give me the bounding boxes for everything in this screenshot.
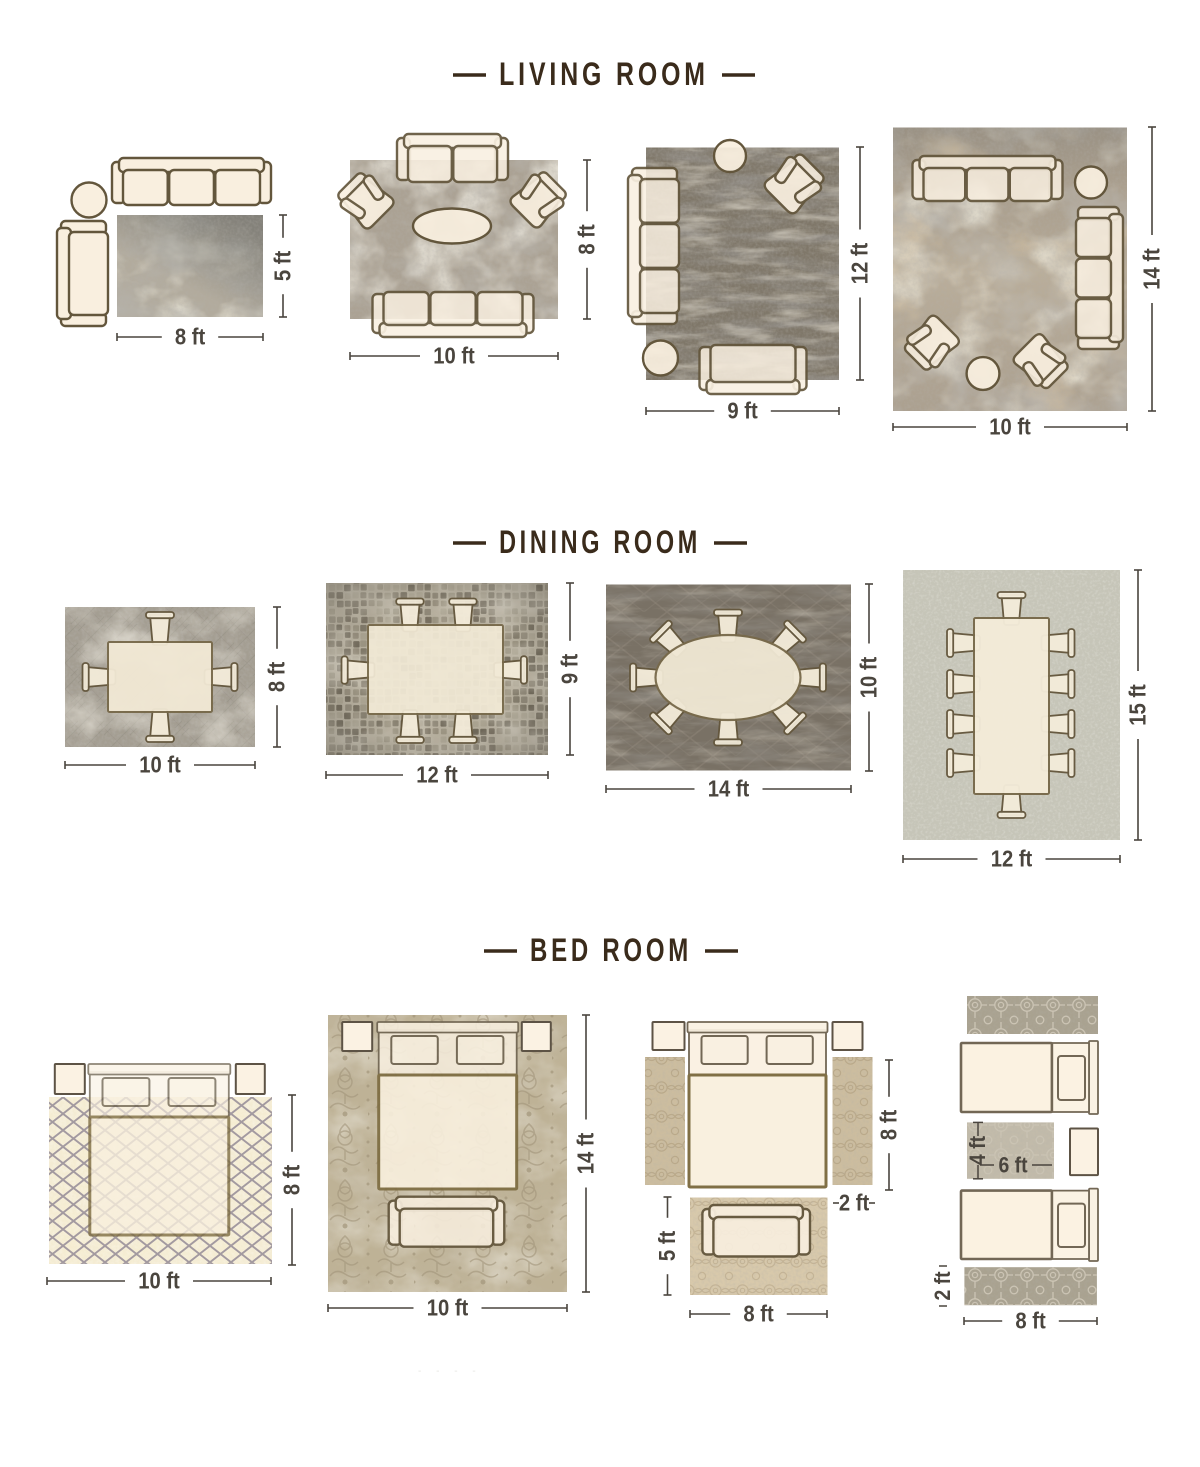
svg-text:8 ft: 8 ft — [175, 323, 205, 350]
svg-text:12 ft: 12 ft — [416, 761, 458, 788]
svg-text:5 ft: 5 ft — [654, 1231, 681, 1261]
svg-text:DINING ROOM: DINING ROOM — [499, 524, 701, 559]
svg-text:14 ft: 14 ft — [1138, 248, 1165, 290]
svg-text:2 ft: 2 ft — [839, 1189, 869, 1216]
svg-text:8 ft: 8 ft — [743, 1300, 773, 1327]
svg-text:10 ft: 10 ft — [855, 657, 882, 699]
svg-text:10 ft: 10 ft — [427, 1294, 469, 1321]
svg-text:14 ft: 14 ft — [572, 1133, 599, 1175]
svg-text:- - - -: - - - - — [418, 1366, 482, 1377]
svg-text:5 ft: 5 ft — [269, 251, 296, 281]
svg-text:8 ft: 8 ft — [278, 1165, 305, 1195]
svg-text:8 ft: 8 ft — [1015, 1307, 1045, 1334]
svg-text:LIVING ROOM: LIVING ROOM — [499, 57, 709, 93]
svg-text:14 ft: 14 ft — [708, 775, 750, 802]
svg-text:8 ft: 8 ft — [875, 1110, 902, 1140]
svg-text:10 ft: 10 ft — [989, 413, 1031, 440]
svg-text:10 ft: 10 ft — [433, 342, 475, 369]
svg-text:6 ft: 6 ft — [998, 1153, 1027, 1177]
svg-text:9 ft: 9 ft — [727, 397, 757, 424]
svg-text:8 ft: 8 ft — [263, 662, 290, 692]
svg-text:12 ft: 12 ft — [846, 243, 873, 285]
svg-text:4 ft: 4 ft — [966, 1136, 990, 1165]
svg-text:15 ft: 15 ft — [1124, 684, 1151, 726]
svg-text:10 ft: 10 ft — [138, 1267, 180, 1294]
svg-text:9 ft: 9 ft — [556, 654, 583, 684]
svg-text:2 ft: 2 ft — [931, 1271, 955, 1300]
svg-text:12 ft: 12 ft — [991, 845, 1033, 872]
svg-text:BED ROOM: BED ROOM — [530, 932, 692, 968]
svg-text:10 ft: 10 ft — [139, 751, 181, 778]
svg-text:8 ft: 8 ft — [573, 224, 600, 254]
